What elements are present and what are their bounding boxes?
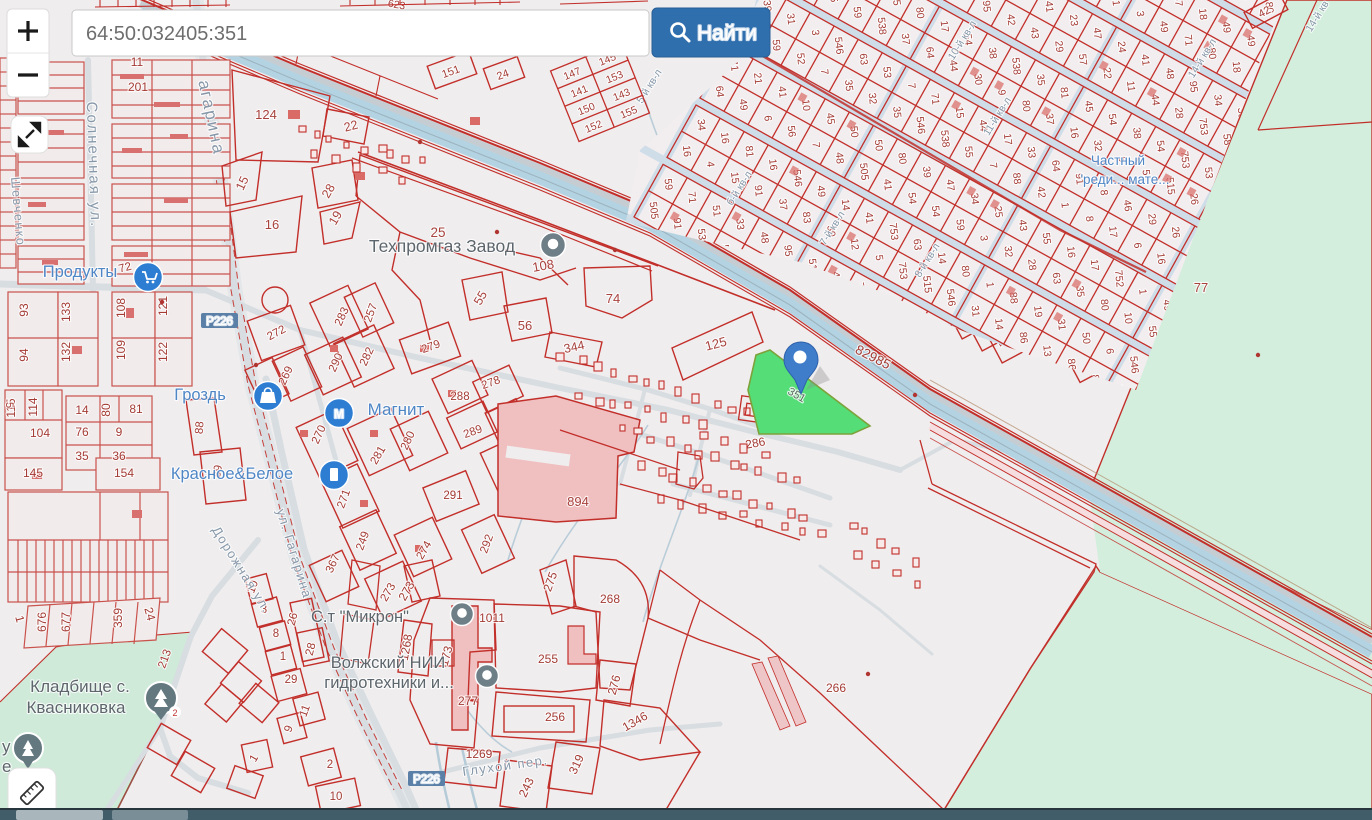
- svg-text:2: 2: [327, 759, 333, 771]
- svg-text:5: 5: [3, 402, 15, 408]
- svg-text:538: 538: [1009, 57, 1023, 76]
- svg-text:80: 80: [959, 265, 972, 278]
- svg-text:359: 359: [111, 608, 125, 628]
- svg-text:16: 16: [1067, 126, 1080, 139]
- svg-text:34: 34: [1211, 94, 1224, 107]
- svg-text:255: 255: [538, 652, 558, 666]
- svg-text:677: 677: [59, 612, 73, 632]
- svg-text:56: 56: [785, 125, 798, 138]
- svg-text:39: 39: [920, 166, 933, 179]
- svg-text:71: 71: [928, 93, 941, 106]
- svg-text:57: 57: [1076, 53, 1089, 66]
- svg-text:48: 48: [1163, 67, 1176, 80]
- svg-text:132: 132: [59, 342, 73, 362]
- svg-text:41: 41: [1042, 0, 1055, 13]
- svg-text:201: 201: [128, 80, 148, 94]
- svg-text:19: 19: [1031, 305, 1044, 318]
- svg-text:Кладбище с.: Кладбище с.: [30, 677, 130, 696]
- svg-text:16: 16: [766, 158, 779, 171]
- svg-text:32: 32: [1091, 139, 1104, 152]
- svg-text:1011: 1011: [479, 611, 505, 625]
- svg-text:Техпромгаз Завод: Техпромгаз Завод: [369, 236, 515, 256]
- svg-text:54: 54: [905, 192, 918, 205]
- svg-text:31: 31: [784, 13, 797, 26]
- svg-text:81: 81: [129, 402, 143, 416]
- svg-text:88: 88: [1010, 172, 1023, 185]
- svg-text:23: 23: [1067, 14, 1080, 27]
- svg-text:64: 64: [1049, 159, 1062, 172]
- svg-text:95: 95: [1187, 80, 1200, 93]
- svg-text:64: 64: [713, 85, 726, 98]
- svg-text:133: 133: [59, 302, 73, 322]
- svg-text:8: 8: [273, 628, 279, 640]
- svg-text:83: 83: [800, 211, 813, 224]
- svg-text:21: 21: [751, 72, 764, 85]
- svg-text:81: 81: [743, 145, 756, 158]
- svg-text:55: 55: [962, 145, 975, 158]
- svg-text:49: 49: [1157, 20, 1170, 33]
- svg-text:80: 80: [1019, 100, 1032, 113]
- svg-text:77: 77: [1194, 280, 1208, 295]
- svg-text:94: 94: [17, 348, 31, 362]
- svg-text:36: 36: [112, 449, 126, 463]
- svg-text:753: 753: [1196, 117, 1210, 136]
- svg-text:Р226: Р226: [413, 774, 440, 786]
- svg-text:64: 64: [923, 46, 936, 59]
- svg-text:11: 11: [1124, 80, 1137, 92]
- svg-text:Волжский НИИ: Волжский НИИ: [331, 654, 446, 672]
- svg-text:Найти: Найти: [697, 22, 757, 45]
- svg-text:гидротехники и...: гидротехники и...: [324, 674, 454, 692]
- svg-text:91: 91: [752, 184, 765, 197]
- svg-text:59: 59: [769, 39, 782, 52]
- svg-text:42: 42: [1004, 13, 1017, 26]
- svg-text:Красное&Белое: Красное&Белое: [171, 465, 293, 483]
- svg-text:29: 29: [1145, 213, 1158, 226]
- svg-text:50: 50: [1079, 332, 1092, 345]
- svg-text:95: 95: [980, 0, 993, 13]
- svg-text:538: 538: [938, 129, 952, 148]
- svg-text:2: 2: [172, 708, 177, 718]
- svg-text:29: 29: [285, 674, 298, 686]
- svg-text:41: 41: [1139, 54, 1152, 67]
- svg-text:41: 41: [776, 86, 789, 99]
- svg-text:С.т "Микрон": С.т "Микрон": [311, 608, 409, 626]
- svg-text:124: 124: [255, 107, 277, 122]
- svg-text:54: 54: [929, 205, 942, 218]
- svg-text:28: 28: [1172, 106, 1185, 119]
- svg-text:24: 24: [1115, 41, 1128, 54]
- svg-text:32: 32: [866, 92, 879, 105]
- svg-text:16: 16: [1154, 252, 1167, 265]
- svg-text:35: 35: [842, 79, 855, 92]
- svg-text:676: 676: [35, 612, 49, 632]
- svg-text:14: 14: [75, 403, 89, 417]
- svg-text:63: 63: [1050, 272, 1063, 285]
- svg-text:17: 17: [1106, 225, 1119, 238]
- svg-text:505: 505: [647, 201, 661, 220]
- svg-text:154: 154: [114, 466, 134, 480]
- svg-text:Гроздь: Гроздь: [174, 386, 226, 404]
- svg-text:16: 16: [680, 145, 693, 158]
- svg-text:71: 71: [1181, 34, 1194, 47]
- svg-text:894: 894: [567, 494, 589, 509]
- svg-text:37: 37: [776, 198, 789, 211]
- svg-text:1269: 1269: [466, 747, 493, 761]
- svg-text:104: 104: [30, 426, 50, 440]
- svg-text:18: 18: [1196, 8, 1209, 21]
- svg-text:56: 56: [518, 318, 532, 333]
- svg-text:у: у: [2, 737, 11, 756]
- svg-text:17: 17: [1088, 259, 1101, 272]
- svg-text:45: 45: [824, 112, 837, 125]
- svg-text:288: 288: [450, 391, 469, 403]
- svg-text:31: 31: [969, 305, 982, 318]
- svg-text:76: 76: [75, 425, 89, 439]
- svg-text:753: 753: [896, 261, 910, 280]
- svg-text:538: 538: [875, 17, 889, 36]
- svg-text:11: 11: [131, 55, 144, 69]
- svg-text:80: 80: [99, 403, 113, 417]
- svg-text:63: 63: [857, 53, 870, 66]
- svg-text:86: 86: [1017, 331, 1030, 344]
- svg-text:14: 14: [992, 318, 1005, 331]
- svg-text:71: 71: [685, 191, 698, 204]
- svg-text:80: 80: [913, 6, 926, 19]
- svg-text:18: 18: [1230, 61, 1243, 74]
- svg-text:277: 277: [458, 694, 478, 708]
- svg-text:59: 59: [661, 178, 674, 191]
- svg-text:28: 28: [1025, 258, 1038, 271]
- svg-text:49: 49: [736, 98, 749, 111]
- svg-text:35: 35: [75, 449, 89, 463]
- svg-text:Продукты: Продукты: [43, 263, 118, 281]
- svg-text:93: 93: [17, 303, 31, 317]
- svg-text:43: 43: [1016, 219, 1029, 232]
- svg-text:45: 45: [1082, 100, 1095, 113]
- svg-text:59: 59: [953, 219, 966, 232]
- svg-text:38: 38: [1130, 127, 1143, 140]
- svg-text:753: 753: [887, 222, 901, 241]
- svg-text:46: 46: [1121, 199, 1134, 212]
- svg-text:М: М: [334, 407, 344, 421]
- svg-text:256: 256: [545, 710, 565, 724]
- svg-text:35: 35: [890, 106, 903, 119]
- svg-text:122: 122: [156, 342, 170, 362]
- svg-text:17: 17: [938, 20, 951, 33]
- svg-text:546: 546: [944, 288, 958, 307]
- svg-text:16: 16: [718, 132, 731, 145]
- svg-text:41: 41: [862, 211, 875, 224]
- svg-text:Р226: Р226: [206, 316, 233, 328]
- svg-text:1: 1: [280, 651, 286, 663]
- svg-text:26: 26: [1169, 226, 1182, 239]
- svg-text:108: 108: [114, 298, 128, 318]
- svg-text:17: 17: [1001, 133, 1014, 146]
- svg-text:109: 109: [114, 340, 128, 360]
- svg-text:74: 74: [606, 291, 620, 306]
- svg-text:'реди... мате...: 'реди... мате...: [1080, 172, 1169, 187]
- svg-text:16: 16: [265, 217, 279, 232]
- svg-text:95: 95: [781, 244, 794, 257]
- svg-text:47: 47: [1090, 27, 1103, 40]
- svg-text:88: 88: [193, 421, 206, 435]
- svg-text:145: 145: [23, 466, 43, 480]
- svg-text:29: 29: [1052, 40, 1065, 53]
- svg-text:32: 32: [1002, 245, 1015, 258]
- svg-text:38: 38: [986, 47, 999, 60]
- svg-text:48: 48: [833, 152, 846, 165]
- svg-text:42: 42: [1034, 186, 1047, 199]
- svg-text:49: 49: [814, 185, 827, 198]
- svg-text:546: 546: [1127, 355, 1141, 374]
- svg-text:54: 54: [1154, 140, 1167, 153]
- svg-text:35: 35: [1034, 73, 1047, 86]
- svg-text:80: 80: [895, 152, 908, 165]
- svg-text:114: 114: [26, 397, 40, 416]
- svg-text:291: 291: [443, 490, 462, 502]
- svg-text:51: 51: [710, 205, 723, 218]
- svg-text:55: 55: [1040, 232, 1053, 245]
- svg-text:266: 266: [826, 681, 846, 695]
- svg-text:14: 14: [839, 198, 852, 211]
- svg-text:52: 52: [794, 52, 807, 65]
- svg-text:80: 80: [1098, 298, 1111, 311]
- svg-text:268: 268: [600, 592, 620, 606]
- svg-text:41: 41: [881, 178, 894, 191]
- svg-text:Частный: Частный: [1091, 153, 1145, 168]
- svg-text:53: 53: [880, 66, 893, 79]
- svg-text:Магнит: Магнит: [368, 400, 425, 419]
- svg-text:Квасниковка: Квасниковка: [27, 698, 127, 717]
- svg-text:81: 81: [1057, 86, 1070, 99]
- svg-text:53: 53: [1202, 166, 1215, 179]
- svg-text:43: 43: [1028, 27, 1041, 40]
- svg-text:63: 63: [910, 238, 923, 251]
- svg-text:546: 546: [913, 116, 927, 135]
- svg-text:33: 33: [1025, 146, 1038, 159]
- svg-text:121: 121: [156, 296, 170, 316]
- svg-text:59: 59: [851, 6, 864, 19]
- svg-text:9: 9: [116, 425, 123, 439]
- svg-text:546: 546: [832, 36, 846, 55]
- svg-text:48: 48: [758, 231, 771, 244]
- svg-text:10: 10: [330, 791, 343, 803]
- svg-text:16: 16: [1064, 246, 1077, 259]
- svg-text:10: 10: [1121, 312, 1134, 325]
- svg-text:64:50:032405:351: 64:50:032405:351: [86, 23, 247, 45]
- svg-text:34: 34: [694, 118, 707, 131]
- svg-text:505: 505: [857, 162, 871, 181]
- svg-text:37: 37: [899, 33, 912, 46]
- svg-text:752: 752: [1112, 269, 1126, 288]
- svg-text:47: 47: [943, 179, 956, 192]
- svg-text:54: 54: [1106, 113, 1119, 126]
- svg-text:50: 50: [872, 139, 885, 152]
- svg-text:13: 13: [1040, 344, 1053, 357]
